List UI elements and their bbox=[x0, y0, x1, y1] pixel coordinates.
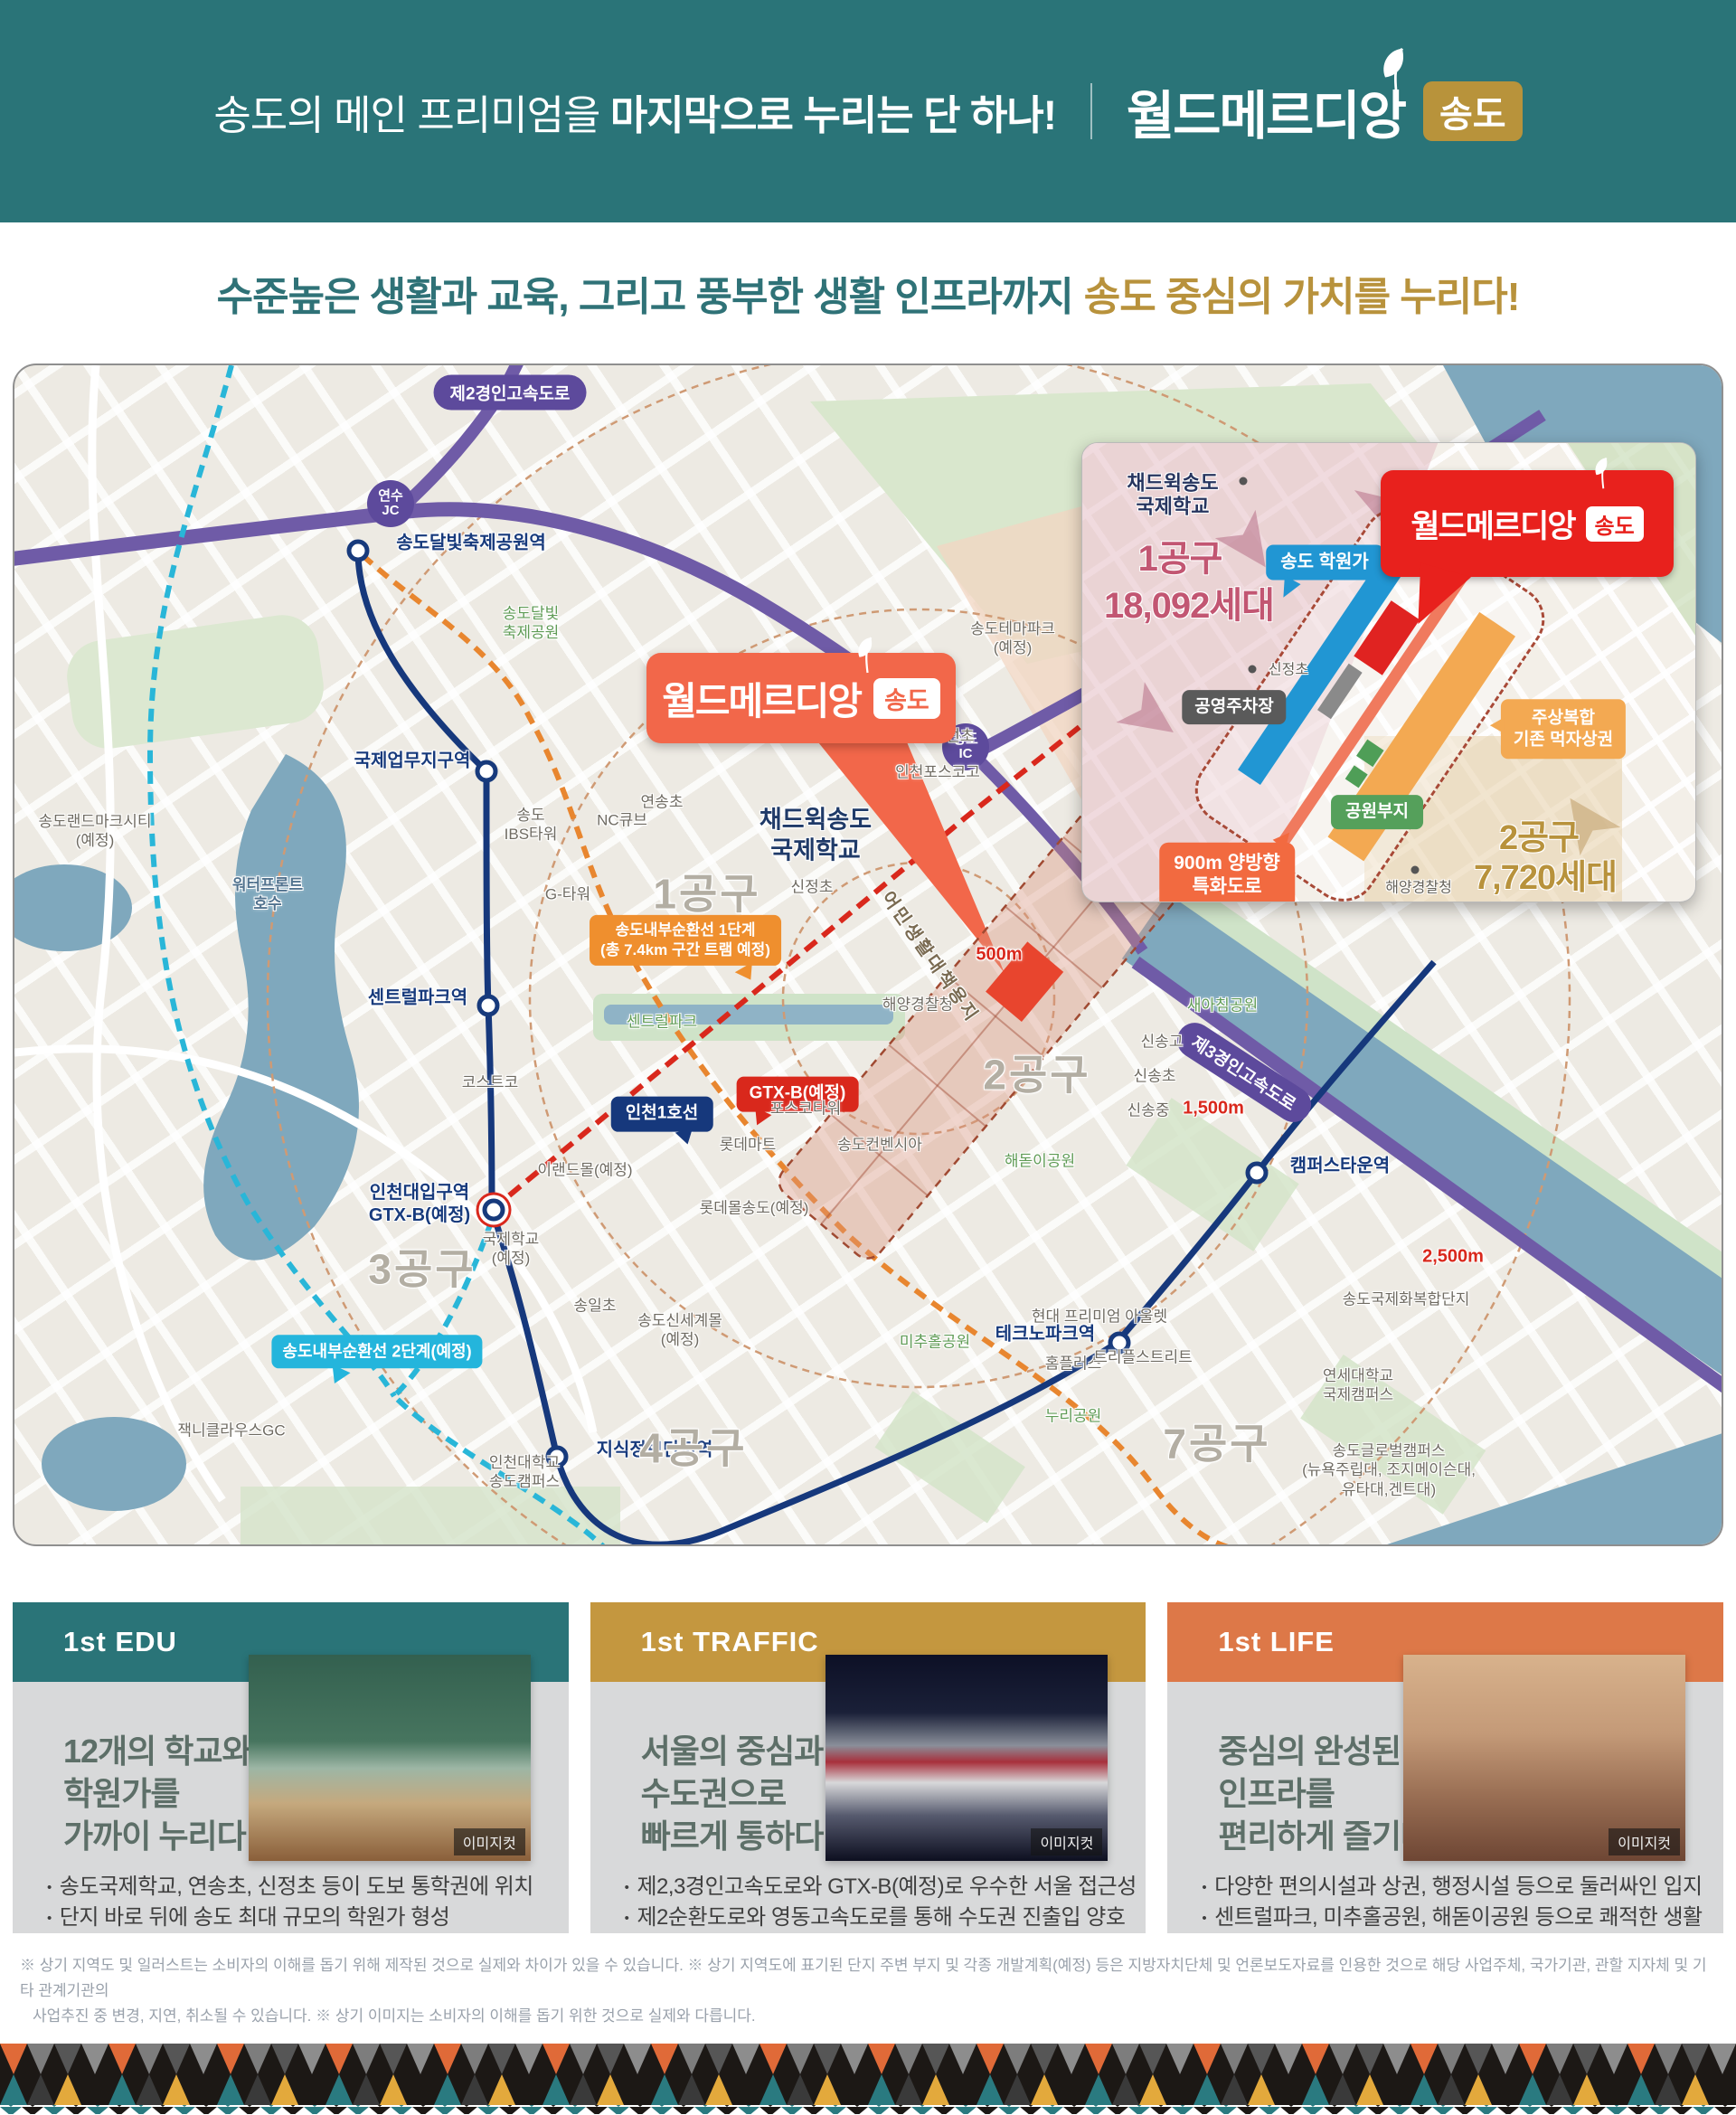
subheadline-teal: 수준높은 생활과 교육, 그리고 풍부한 생활 인프라까지 bbox=[217, 264, 1073, 322]
district-1: 1공구 bbox=[653, 868, 760, 921]
feature-cards: 1st EDU 12개의 학교와 학원가를 가까이 누리다 이미지컷 송도국제학… bbox=[13, 1602, 1723, 1933]
station-campus-town: 캠퍼스타운역 bbox=[1290, 1156, 1390, 1178]
place-chadwick: 채드윅송도 국제학교 bbox=[759, 805, 872, 866]
headline-bold: 마지막으로 누리는 단 하나! bbox=[610, 92, 1056, 138]
place-sinsong-high: 신송고 bbox=[1141, 1032, 1184, 1051]
place-triple-street: 트리플스트리트 bbox=[1093, 1347, 1192, 1366]
card-edu: 1st EDU 12개의 학교와 학원가를 가까이 누리다 이미지컷 송도국제학… bbox=[13, 1602, 569, 1933]
inset-district2: 2공구 bbox=[1499, 818, 1579, 860]
district-3: 3공구 bbox=[368, 1243, 476, 1296]
inset-parking-label: 공영주차장 bbox=[1182, 690, 1286, 724]
image-caption: 이미지컷 bbox=[1031, 1828, 1102, 1855]
triangle-pattern bbox=[0, 2044, 1736, 2115]
inset-dot bbox=[1249, 666, 1257, 674]
image-caption: 이미지컷 bbox=[454, 1828, 525, 1855]
place-intl-complex: 송도국제화복합단지 bbox=[1343, 1289, 1470, 1308]
card-edu-photo: 이미지컷 bbox=[249, 1655, 531, 1861]
disclaimer-line1: ※ 상기 지역도 및 일러스트는 소비자의 이해를 돕기 위해 제작된 것으로 … bbox=[20, 1953, 1720, 2004]
inset-special-road-label: 900m 양방향 특화도로 bbox=[1159, 843, 1295, 902]
card-life-bullets: 다양한 편의시설과 상권, 행정시설 등으로 둘러싸인 입지 센트럴파크, 미추… bbox=[1202, 1872, 1714, 1932]
ring-500m: 500m bbox=[976, 944, 1022, 967]
expressway2-badge: 제2경인고속도로 bbox=[434, 375, 587, 411]
place-g-tower: G-타워 bbox=[545, 884, 590, 903]
card-traffic-title: 서울의 중심과 수도권으로 빠르게 통하다 bbox=[641, 1731, 824, 1857]
inset-park-site-label: 공원부지 bbox=[1331, 795, 1423, 829]
footer-pattern bbox=[0, 2044, 1736, 2115]
place-posco-tower: 포스코타워 bbox=[770, 1099, 841, 1118]
inset-coast-guard: 해양경찰청 bbox=[1385, 879, 1452, 896]
place-yonsei: 연세대학교 국제캠퍼스 bbox=[1323, 1366, 1393, 1405]
place-lotte-mall: 롯데몰송도(예정) bbox=[700, 1198, 809, 1217]
header-divider bbox=[1090, 83, 1092, 139]
tram1-label: 송도내부순환선 1단계 (총 7.4km 구간 트램 예정) bbox=[590, 915, 781, 966]
station-dot bbox=[347, 540, 370, 562]
header-bar: 송도의 메인 프리미엄을 마지막으로 누리는 단 하나! 월드메르디앙 송도 bbox=[0, 0, 1736, 222]
inset-sinjeong: 신정초 bbox=[1269, 661, 1308, 678]
place-ibs-tower: 송도 IBS타워 bbox=[505, 806, 558, 845]
leaf-icon bbox=[1374, 42, 1416, 102]
place-hyundai-outlet: 현대 프리미엄 아울렛 bbox=[1032, 1307, 1167, 1326]
district-4: 4공구 bbox=[639, 1422, 747, 1475]
map-callout-brand: 월드메르디앙 bbox=[662, 671, 861, 726]
ring-1500m: 1,500m bbox=[1183, 1098, 1244, 1120]
park-moonlight: 송도달빛 축제공원 bbox=[503, 604, 560, 643]
station-dot-gtx bbox=[483, 1199, 505, 1222]
place-sinsong-elem: 신송초 bbox=[1134, 1066, 1176, 1085]
place-yeonsong: 연송초 bbox=[641, 792, 684, 811]
inset-district2-units: 7,720세대 bbox=[1474, 858, 1617, 900]
map-callout: 월드메르디앙 송도 bbox=[646, 653, 956, 743]
place-shinsegae: 송도신세계몰 (예정) bbox=[637, 1311, 722, 1350]
district-7: 7공구 bbox=[1163, 1418, 1270, 1470]
inset-dot bbox=[1411, 866, 1420, 874]
place-coast-guard: 해양경찰청 bbox=[882, 995, 953, 1014]
line1-badge: 인천1호선 bbox=[611, 1097, 713, 1132]
place-waterfront: 워터프론트 호수 bbox=[232, 875, 303, 914]
card-edu-bullets: 송도국제학교, 연송초, 신정초 등이 도보 통학권에 위치 단지 바로 뒤에 … bbox=[47, 1872, 560, 1932]
card-traffic: 1st TRAFFIC 서울의 중심과 수도권으로 빠르게 통하다 이미지컷 제… bbox=[590, 1602, 1146, 1933]
place-intl-school: 국제학교 (예정) bbox=[483, 1230, 540, 1269]
area-map: 제2경인고속도로 제3경인고속도로 연수 JC 송도 IC 송도달빛축제공원역 … bbox=[13, 364, 1723, 1546]
inset-district1: 1공구 bbox=[1138, 537, 1222, 581]
park-saeachim: 새아침공원 bbox=[1187, 996, 1258, 1015]
park-central: 센트럴파크 bbox=[627, 1012, 697, 1031]
place-landmark-city: 송도랜드마크시티 (예정) bbox=[38, 812, 151, 851]
place-posco-high: 인천포스코고 bbox=[895, 762, 980, 781]
headline: 송도의 메인 프리미엄을 마지막으로 누리는 단 하나! bbox=[213, 82, 1055, 141]
station-incheon-univ: 인천대입구역 GTX-B(예정) bbox=[369, 1182, 470, 1227]
place-songil: 송일초 bbox=[574, 1296, 617, 1315]
station-central-park: 센트럴파크역 bbox=[368, 987, 467, 1010]
disclaimer: ※ 상기 지역도 및 일러스트는 소비자의 이해를 돕기 위해 제작된 것으로 … bbox=[20, 1953, 1720, 2029]
headline-regular: 송도의 메인 프리미엄을 bbox=[213, 92, 610, 138]
image-caption: 이미지컷 bbox=[1609, 1828, 1680, 1855]
place-jack-nicklaus: 잭니클라우스GC bbox=[177, 1421, 285, 1440]
district-2: 2공구 bbox=[983, 1049, 1090, 1101]
bullet: 단지 바로 뒤에 송도 최대 규모의 학원가 형성 bbox=[47, 1903, 560, 1933]
inset-mixed-use-label: 주상복합 기존 먹자상권 bbox=[1501, 699, 1626, 759]
place-convensia: 송도컨벤시아 bbox=[837, 1135, 922, 1154]
place-incheon-univ-campus: 인천대학교 송도캠퍼스 bbox=[489, 1453, 560, 1492]
poster-page: 송도의 메인 프리미엄을 마지막으로 누리는 단 하나! 월드메르디앙 송도 수… bbox=[0, 0, 1736, 2115]
place-eland: 이랜드몰(예정) bbox=[537, 1160, 632, 1179]
subheadline-gold: 송도 중심의 가치를 누리다! bbox=[1084, 264, 1520, 322]
place-costco: 코스트코 bbox=[462, 1072, 519, 1091]
station-dot bbox=[477, 995, 500, 1017]
place-theme-park: 송도테마파크 (예정) bbox=[970, 619, 1055, 658]
station-moonlight: 송도달빛축제공원역 bbox=[396, 533, 546, 555]
yeonsu-jc-badge: 연수 JC bbox=[367, 480, 414, 527]
card-traffic-bullets: 제2,3경인고속도로와 GTX-B(예정)로 우수한 서울 접근성 제2순환도로… bbox=[625, 1872, 1137, 1932]
inset-callout-brand: 월드메르디앙 bbox=[1410, 501, 1574, 547]
station-technopark: 테크노파크역 bbox=[995, 1324, 1095, 1346]
station-intl-biz: 국제업무지구역 bbox=[354, 751, 471, 773]
bullet: 제2순환도로와 영동고속도로를 통해 수도권 진출입 양호 bbox=[625, 1903, 1137, 1933]
park-michuhol: 미추홀공원 bbox=[900, 1332, 970, 1351]
bullet: 다양한 편의시설과 상권, 행정시설 등으로 둘러싸인 입지 bbox=[1202, 1872, 1714, 1903]
inset-map: ➤ ➤ ➤ ➤ 채드윅송도 국제학교 1공구 18,092세대 송도 학원가 월… bbox=[1081, 442, 1696, 902]
brand-logo: 월드메르디앙 송도 bbox=[1127, 73, 1523, 149]
leaf-icon bbox=[1590, 454, 1614, 490]
inset-callout: 월드메르디앙 송도 bbox=[1381, 470, 1674, 577]
inset-dot bbox=[1240, 477, 1248, 486]
bullet: 제2,3경인고속도로와 GTX-B(예정)로 우수한 서울 접근성 bbox=[625, 1872, 1137, 1903]
place-sinjeong: 신정초 bbox=[791, 877, 834, 896]
station-dot bbox=[476, 760, 498, 783]
brand-badge: 송도 bbox=[1423, 81, 1523, 141]
disclaimer-line2: 사업추진 중 변경, 지연, 취소될 수 있습니다. ※ 상기 이미지는 소비자… bbox=[20, 2004, 1720, 2029]
card-life-title: 중심의 완성된 인프라를 편리하게 즐기다 bbox=[1218, 1731, 1429, 1857]
station-dot bbox=[1246, 1162, 1269, 1185]
inset-school: 채드윅송도 국제학교 bbox=[1127, 472, 1218, 520]
card-life-photo: 이미지컷 bbox=[1403, 1655, 1685, 1861]
inset-academy-label: 송도 학원가 bbox=[1266, 545, 1383, 581]
bullet: 센트럴파크, 미추홀공원, 해돋이공원 등으로 쾌적한 생활 bbox=[1202, 1903, 1714, 1933]
card-traffic-photo: 이미지컷 bbox=[826, 1655, 1108, 1861]
leaf-icon bbox=[853, 633, 880, 675]
park-nuri: 누리공원 bbox=[1045, 1406, 1102, 1425]
card-life: 1st LIFE 중심의 완성된 인프라를 편리하게 즐기다 이미지컷 다양한 … bbox=[1167, 1602, 1723, 1933]
park-haedoji: 해돋이공원 bbox=[1005, 1151, 1075, 1170]
place-sinsong-mid: 신송중 bbox=[1127, 1100, 1170, 1119]
brand-name: 월드메르디앙 bbox=[1127, 73, 1405, 149]
inset-district1-units: 18,092세대 bbox=[1104, 584, 1274, 628]
place-nc-cube: NC큐브 bbox=[597, 810, 647, 829]
ring-2500m: 2,500m bbox=[1422, 1246, 1484, 1269]
subheadline: 수준높은 생활과 교육, 그리고 풍부한 생활 인프라까지 송도 중심의 가치를… bbox=[0, 222, 1736, 364]
tram2-label: 송도내부순환선 2단계(예정) bbox=[271, 1335, 482, 1368]
inset-callout-badge: 송도 bbox=[1586, 506, 1644, 542]
place-global-campus: 송도글로벌캠퍼스 (뉴욕주립대, 조지메이슨대, 유타대,겐트대) bbox=[1302, 1441, 1476, 1499]
bullet: 송도국제학교, 연송초, 신정초 등이 도보 통학권에 위치 bbox=[47, 1872, 560, 1903]
card-edu-title: 12개의 학교와 학원가를 가까이 누리다 bbox=[63, 1731, 251, 1857]
map-callout-badge: 송도 bbox=[873, 678, 940, 719]
place-lotte-mart: 롯데마트 bbox=[720, 1135, 777, 1154]
